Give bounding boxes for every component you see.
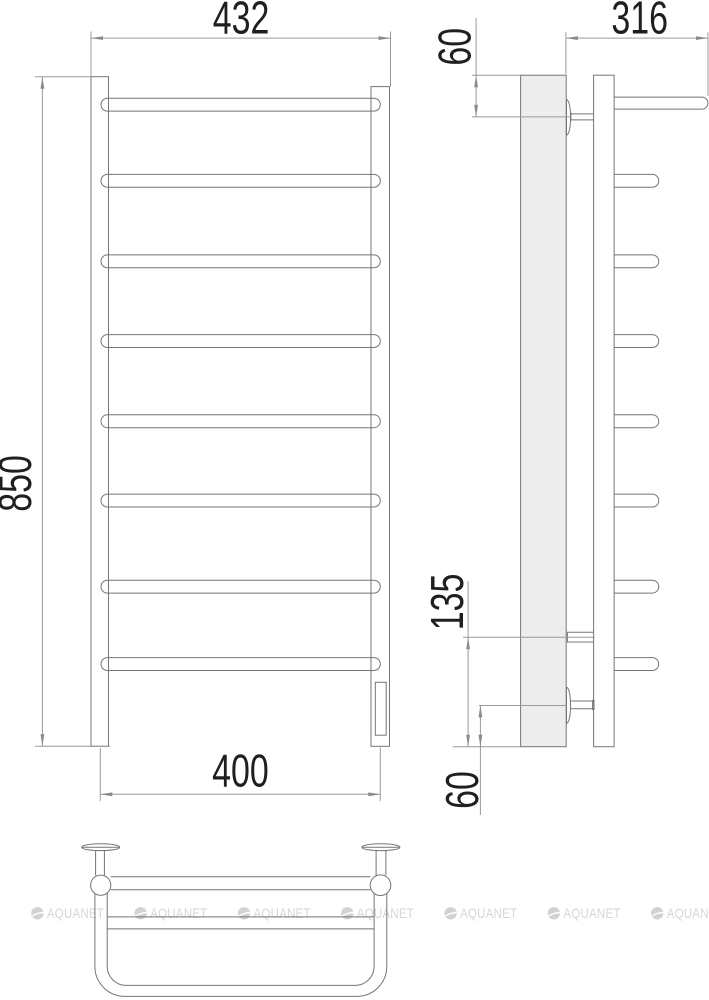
svg-text:60: 60 <box>436 771 489 809</box>
svg-text:850: 850 <box>0 455 41 512</box>
svg-text:316: 316 <box>611 0 668 44</box>
svg-text:400: 400 <box>212 744 269 797</box>
svg-text:60: 60 <box>428 28 481 66</box>
svg-text:135: 135 <box>421 574 474 631</box>
svg-text:432: 432 <box>213 0 270 44</box>
